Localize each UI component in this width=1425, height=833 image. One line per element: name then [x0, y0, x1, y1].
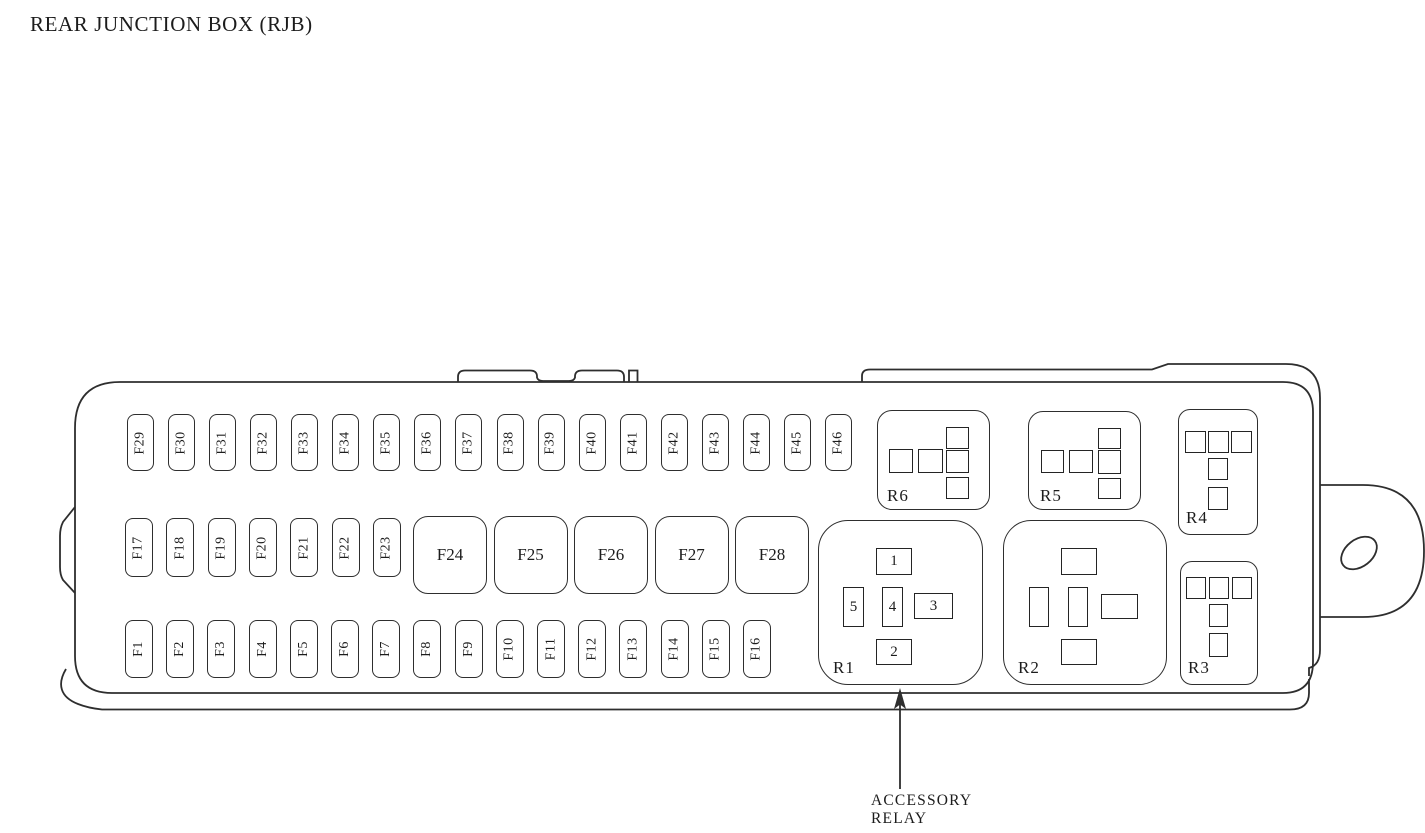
relay-r2-pin-5	[1061, 639, 1097, 665]
relay-label: R1	[833, 658, 855, 678]
fuse-label: F15	[708, 637, 724, 660]
relay-label: R5	[1040, 486, 1062, 506]
relay-r3-pin-1	[1186, 577, 1206, 599]
fuse-f22: F22	[332, 518, 360, 577]
relay-r3-pin-4	[1209, 604, 1228, 627]
fuse-f19: F19	[208, 518, 236, 577]
annotation-line1: ACCESSORY	[871, 792, 972, 810]
fuse-label: F32	[256, 431, 272, 454]
relay-r1-pin-4: 3	[914, 593, 953, 619]
fuse-f3: F3	[207, 620, 235, 678]
fuse-f39: F39	[538, 414, 565, 471]
fuse-f31: F31	[209, 414, 236, 471]
relay-r6-pin-3	[946, 427, 969, 449]
relay-label: R6	[887, 486, 909, 506]
relay-r4-pin-4	[1208, 458, 1228, 480]
fuse-label: F35	[379, 431, 395, 454]
fuse-f1: F1	[125, 620, 153, 678]
pin-label: 1	[890, 553, 898, 570]
fuse-label: F8	[419, 641, 435, 657]
fuse-label: F44	[748, 431, 764, 454]
fuse-f21: F21	[290, 518, 318, 577]
relay-r6-pin-4	[946, 450, 969, 473]
fuse-label: F25	[517, 545, 543, 565]
relay-r5-pin-1	[1041, 450, 1064, 473]
relay-r1-pin-3: 4	[882, 587, 903, 627]
fuse-f27: F27	[655, 516, 729, 594]
fuse-f44: F44	[743, 414, 770, 471]
relay-r2-pin-3	[1068, 587, 1088, 627]
fuse-label: F19	[214, 536, 230, 559]
relay-label: R3	[1188, 658, 1210, 678]
fuse-label: F45	[789, 431, 805, 454]
fuse-label: F31	[215, 431, 231, 454]
left-tab-outline	[60, 507, 75, 593]
fuse-label: F17	[131, 536, 147, 559]
pin-label: 2	[890, 644, 898, 661]
fuse-f24: F24	[413, 516, 487, 594]
relay-r6-pin-5	[946, 477, 969, 499]
fuse-label: F9	[461, 641, 477, 657]
fuse-f33: F33	[291, 414, 318, 471]
fuse-f32: F32	[250, 414, 277, 471]
fuse-label: F36	[420, 431, 436, 454]
fuse-label: F29	[132, 431, 148, 454]
relay-r6: R6	[877, 410, 990, 510]
fuse-f17: F17	[125, 518, 153, 577]
relay-r5-pin-5	[1098, 478, 1121, 499]
relay-r1-pin-5: 2	[876, 639, 912, 665]
relay-r3-pin-5	[1209, 633, 1228, 657]
fuse-label: F13	[625, 637, 641, 660]
relay-r1: 15432R1	[818, 520, 983, 685]
relay-r2-pin-2	[1029, 587, 1049, 627]
relay-label: R2	[1018, 658, 1040, 678]
fuse-f20: F20	[249, 518, 277, 577]
fuse-f25: F25	[494, 516, 568, 594]
relay-r2: R2	[1003, 520, 1167, 685]
fuse-label: F27	[678, 545, 704, 565]
fuse-label: F6	[337, 641, 353, 657]
relay-r6-pin-1	[889, 449, 913, 473]
fuse-label: F40	[584, 431, 600, 454]
fuse-label: F21	[296, 536, 312, 559]
pin-label: 5	[850, 599, 858, 616]
mounting-tab-outline	[1320, 485, 1424, 617]
relay-r4-pin-1	[1185, 431, 1206, 453]
fuse-f29: F29	[127, 414, 154, 471]
fuse-f36: F36	[414, 414, 441, 471]
pin-label: 4	[889, 599, 897, 616]
fuse-f34: F34	[332, 414, 359, 471]
fuse-f18: F18	[166, 518, 194, 577]
fuse-label: F28	[759, 545, 785, 565]
fuse-label: F38	[502, 431, 518, 454]
accessory-relay-annotation: ACCESSORY RELAY	[871, 792, 972, 828]
fuse-f43: F43	[702, 414, 729, 471]
fuse-f5: F5	[290, 620, 318, 678]
fuse-label: F20	[255, 536, 271, 559]
fuse-f13: F13	[619, 620, 647, 678]
fuse-f45: F45	[784, 414, 811, 471]
fuse-f26: F26	[574, 516, 648, 594]
fuse-label: F7	[378, 641, 394, 657]
fuse-f8: F8	[413, 620, 441, 678]
fuse-f15: F15	[702, 620, 730, 678]
relay-r5-pin-2	[1069, 450, 1093, 473]
relay-r4: R4	[1178, 409, 1258, 535]
fuse-f35: F35	[373, 414, 400, 471]
relay-r1-pin-1: 1	[876, 548, 912, 575]
fuse-label: F26	[598, 545, 624, 565]
fuse-label: F14	[667, 637, 683, 660]
fuse-label: F5	[296, 641, 312, 657]
fuse-f42: F42	[661, 414, 688, 471]
pin-label: 3	[930, 598, 938, 615]
fuse-f10: F10	[496, 620, 524, 678]
fuse-label: F33	[297, 431, 313, 454]
fuse-f6: F6	[331, 620, 359, 678]
fuse-f7: F7	[372, 620, 400, 678]
relay-r4-pin-3	[1231, 431, 1252, 453]
fuse-f4: F4	[249, 620, 277, 678]
relay-r5: R5	[1028, 411, 1141, 510]
relay-r2-pin-4	[1101, 594, 1138, 619]
mounting-hole	[1335, 530, 1383, 576]
fuse-label: F10	[502, 637, 518, 660]
fuse-f9: F9	[455, 620, 483, 678]
relay-r6-pin-2	[918, 449, 943, 473]
relay-r5-pin-4	[1098, 450, 1121, 474]
fuse-label: F4	[255, 641, 271, 657]
fuse-label: F23	[379, 536, 395, 559]
fuse-label: F42	[666, 431, 682, 454]
relay-r5-pin-3	[1098, 428, 1121, 449]
fuse-label: F2	[172, 641, 188, 657]
fuse-label: F12	[584, 637, 600, 660]
fuse-label: F16	[749, 637, 765, 660]
fuse-label: F41	[625, 431, 641, 454]
relay-r1-pin-2: 5	[843, 587, 864, 627]
fuse-f12: F12	[578, 620, 606, 678]
annotation-line2: RELAY	[871, 810, 972, 828]
fuse-f30: F30	[168, 414, 195, 471]
relay-r3-pin-3	[1232, 577, 1252, 599]
fuse-label: F43	[707, 431, 723, 454]
fuse-f2: F2	[166, 620, 194, 678]
fuse-label: F39	[543, 431, 559, 454]
fuse-label: F46	[831, 431, 847, 454]
fuse-label: F1	[131, 641, 147, 657]
fuse-label: F24	[437, 545, 463, 565]
fuse-f40: F40	[579, 414, 606, 471]
top-tabs-outline	[458, 371, 638, 383]
fuse-f28: F28	[735, 516, 809, 594]
fuse-f38: F38	[497, 414, 524, 471]
fuse-f14: F14	[661, 620, 689, 678]
fuse-label: F11	[543, 638, 559, 661]
relay-label: R4	[1186, 508, 1208, 528]
relay-r3-pin-2	[1209, 577, 1229, 599]
relay-r3: R3	[1180, 561, 1258, 685]
fuse-label: F22	[338, 536, 354, 559]
fuse-f11: F11	[537, 620, 565, 678]
relay-r4-pin-5	[1208, 487, 1228, 510]
fuse-f46: F46	[825, 414, 852, 471]
relay-r2-pin-1	[1061, 548, 1097, 575]
fuse-f23: F23	[373, 518, 401, 577]
fuse-label: F30	[174, 431, 190, 454]
fuse-box-diagram: REAR JUNCTION BOX (RJB) F29F30F31F32F33F…	[0, 0, 1425, 833]
relay-r4-pin-2	[1208, 431, 1229, 453]
fuse-label: F3	[213, 641, 229, 657]
fuse-f41: F41	[620, 414, 647, 471]
fuse-label: F18	[172, 536, 188, 559]
fuse-label: F34	[338, 431, 354, 454]
fuse-f37: F37	[455, 414, 482, 471]
fuse-label: F37	[461, 431, 477, 454]
fuse-f16: F16	[743, 620, 771, 678]
